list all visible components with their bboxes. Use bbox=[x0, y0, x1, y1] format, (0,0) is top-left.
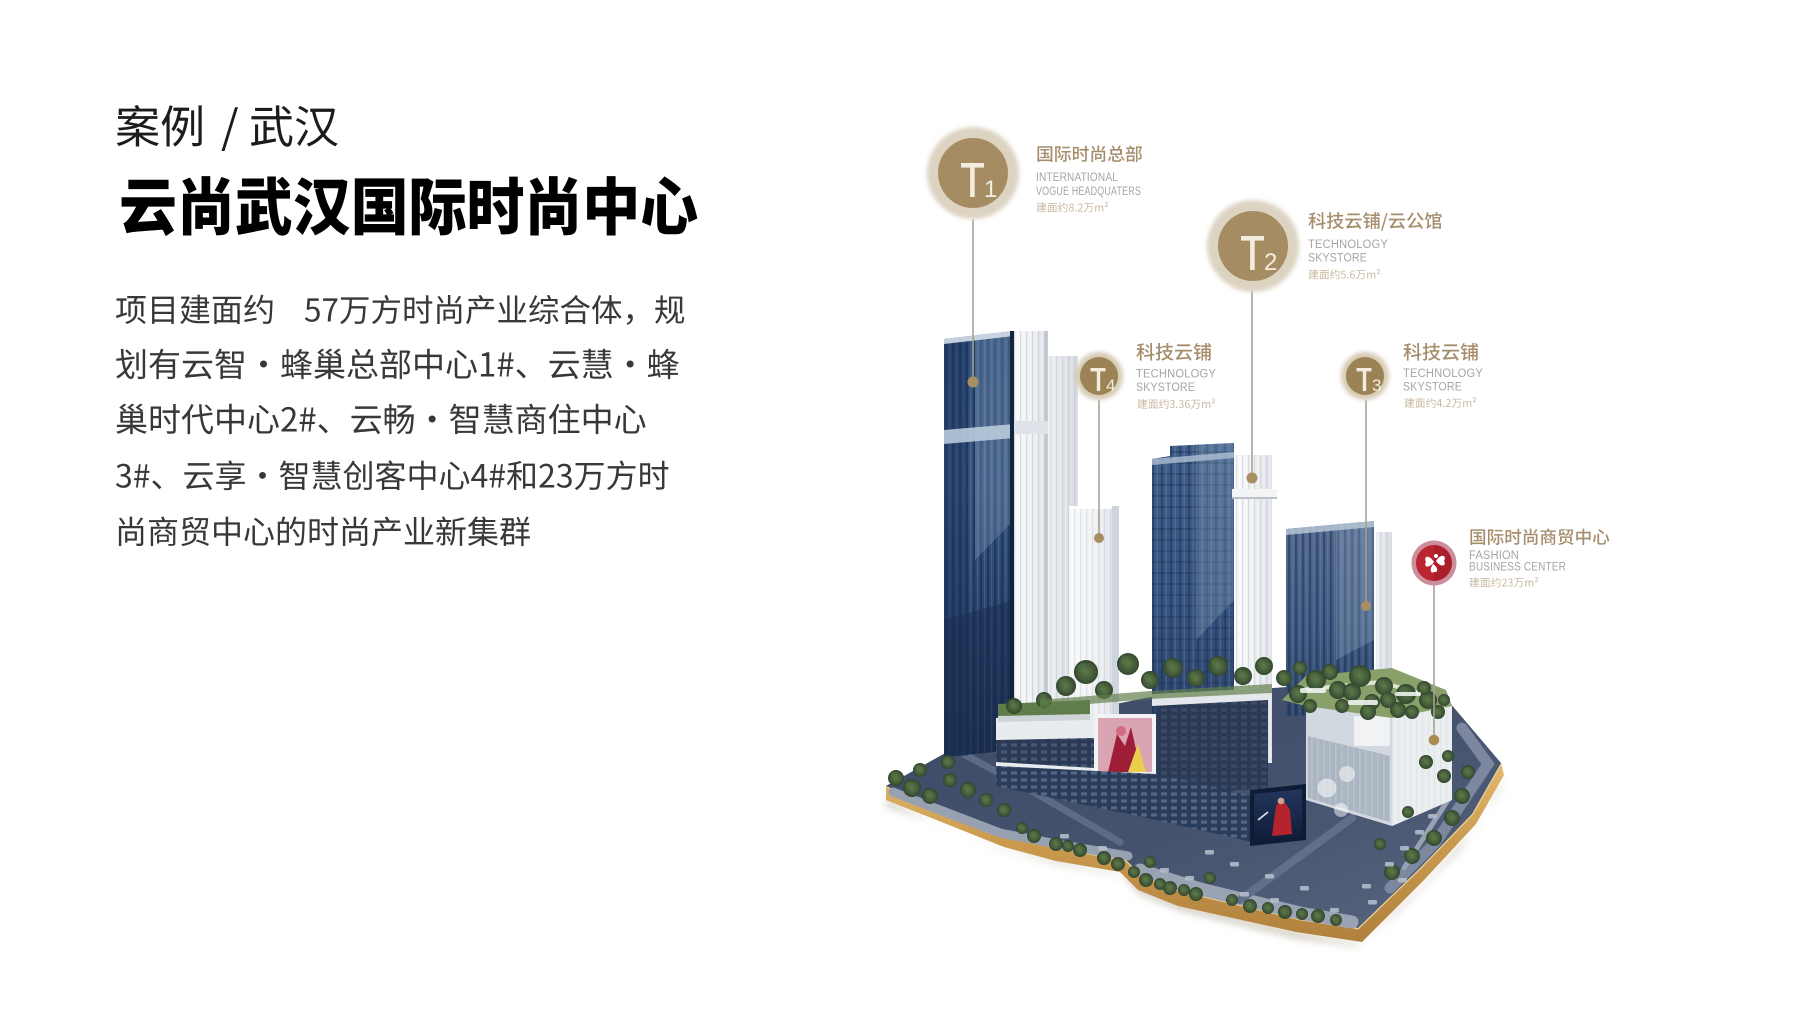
svg-text:TECHNOLOGY: TECHNOLOGY bbox=[1136, 367, 1216, 381]
svg-text:SKYSTORE: SKYSTORE bbox=[1136, 380, 1195, 394]
svg-text:BUSINESS CENTER: BUSINESS CENTER bbox=[1469, 560, 1566, 574]
svg-text:3: 3 bbox=[1372, 376, 1381, 395]
svg-text:2: 2 bbox=[1264, 249, 1277, 276]
svg-text:TECHNOLOGY: TECHNOLOGY bbox=[1308, 237, 1388, 251]
svg-text:SKYSTORE: SKYSTORE bbox=[1403, 380, 1462, 394]
svg-text:INTERNATIONAL: INTERNATIONAL bbox=[1036, 170, 1118, 184]
svg-text:VOGUE HEADQUATERS: VOGUE HEADQUATERS bbox=[1036, 184, 1141, 198]
svg-text:1: 1 bbox=[984, 176, 997, 203]
svg-text:TECHNOLOGY: TECHNOLOGY bbox=[1403, 366, 1483, 380]
svg-text:4: 4 bbox=[1106, 376, 1115, 395]
svg-text:SKYSTORE: SKYSTORE bbox=[1308, 251, 1367, 265]
